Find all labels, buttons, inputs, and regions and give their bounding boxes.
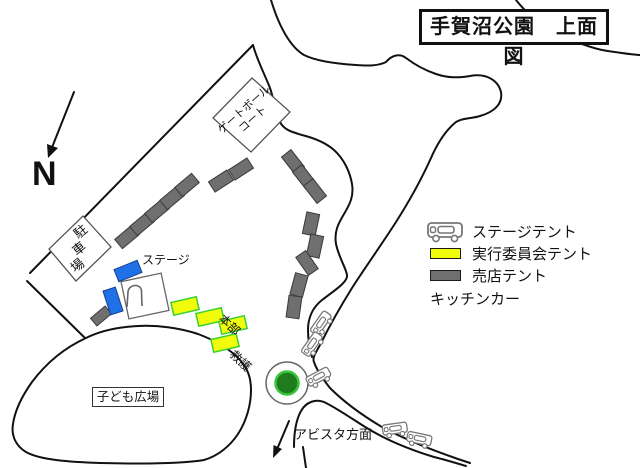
legend-item-shop-tent: 売店テント xyxy=(430,264,592,286)
committee-tent xyxy=(171,297,199,316)
legend-item-kitchen-car: キッチンカー xyxy=(430,286,592,310)
legend-label-kitchen-car: キッチンカー xyxy=(430,288,520,309)
parking-label: 駐車場 xyxy=(64,222,94,275)
children-plaza-label: 子ども広場 xyxy=(92,387,164,407)
roundabout xyxy=(266,362,308,404)
stage-area xyxy=(103,260,169,319)
legend: ステージテント 実行委員会テント 売店テント キッチンカー xyxy=(430,220,592,310)
park-edge-left-to-plaza xyxy=(27,281,85,338)
stage-label: ステージ xyxy=(142,251,190,268)
kitchen-car xyxy=(301,331,326,359)
kitchen-car xyxy=(382,422,408,439)
kitchen-car xyxy=(406,431,433,449)
shop-tent xyxy=(302,212,319,236)
roundabout-green xyxy=(276,372,299,395)
shop-tent xyxy=(290,273,308,298)
legend-label-committee-tent: 実行委員会テント xyxy=(472,243,592,264)
kitchen-car-icon xyxy=(426,220,464,244)
north-arrow xyxy=(47,92,74,158)
avista-direction-label: アビスタ方面 xyxy=(294,424,372,443)
map-title: 手賀沼公園 上面図 xyxy=(419,9,609,45)
path-exit-bottom xyxy=(303,447,306,468)
shop-tent-swatch xyxy=(430,270,461,281)
north-label: N xyxy=(32,155,57,194)
committee-tent-swatch xyxy=(430,248,461,259)
shop-tent xyxy=(229,158,254,180)
legend-item-committee-tent: 実行委員会テント xyxy=(430,242,592,264)
shop-tent xyxy=(209,170,234,192)
legend-label-shop-tent: 売店テント xyxy=(472,265,547,286)
legend-label-stage-tent: ステージテント xyxy=(472,221,577,242)
park-map: 手賀沼公園 上面図 N ゲートボール コート 駐車場 ステージ 本部 救護 子ど… xyxy=(0,0,640,468)
avista-direction-arrow xyxy=(273,421,289,458)
shop-tent xyxy=(286,295,302,319)
